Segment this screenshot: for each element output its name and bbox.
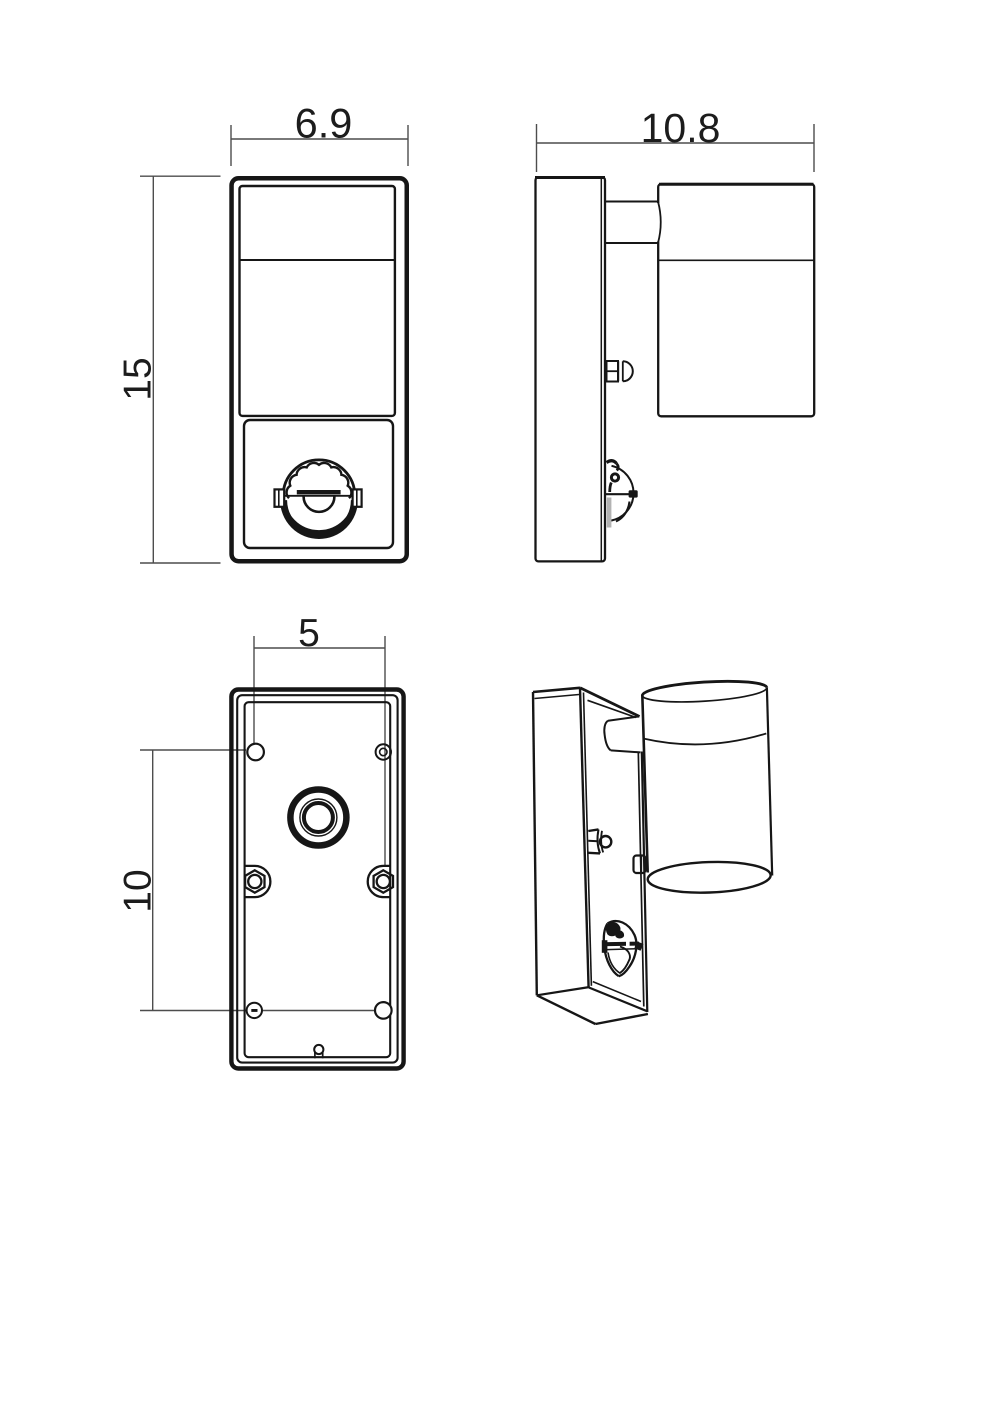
svg-text:6.9: 6.9	[295, 100, 353, 147]
svg-text:10: 10	[117, 869, 160, 912]
svg-text:15: 15	[117, 357, 160, 400]
svg-text:5: 5	[298, 612, 320, 655]
svg-text:10.8: 10.8	[641, 105, 721, 151]
